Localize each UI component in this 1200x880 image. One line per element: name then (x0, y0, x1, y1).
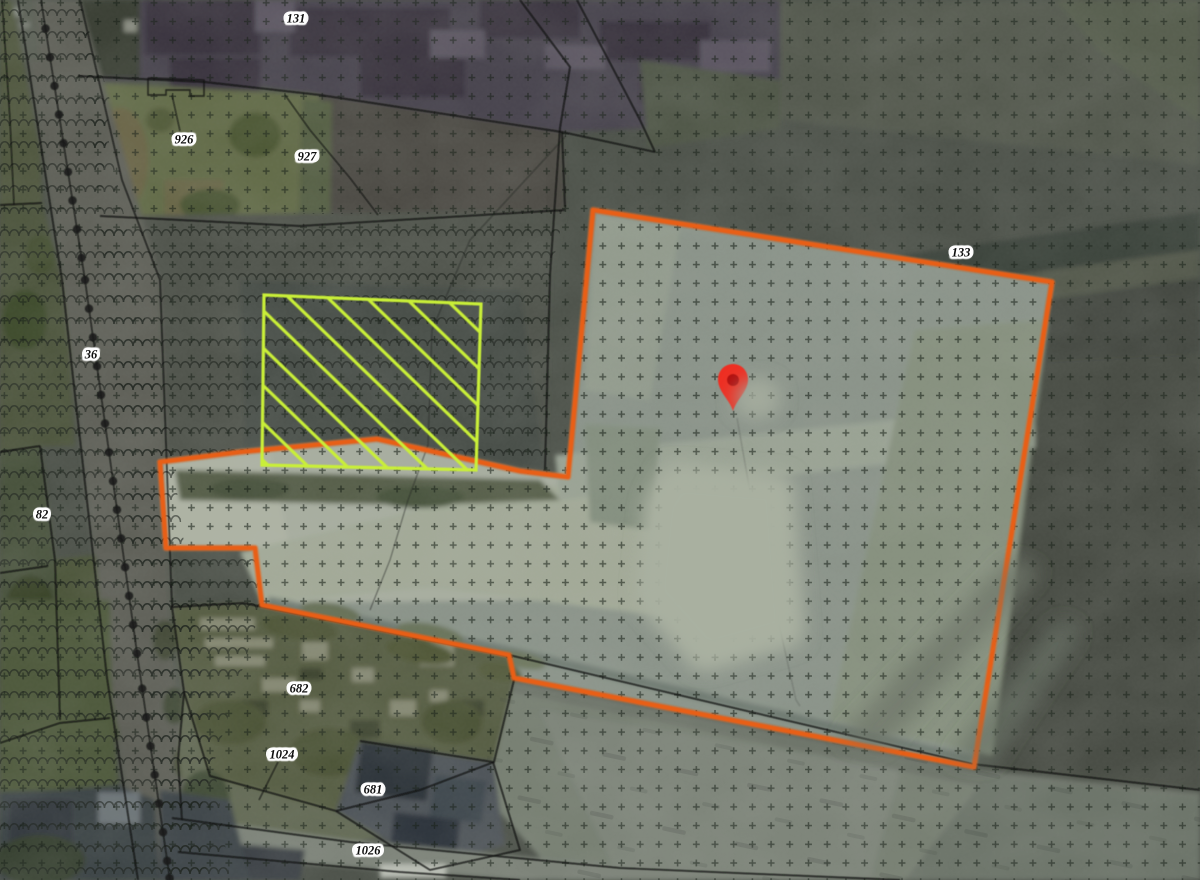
svg-text:133: 133 (952, 246, 971, 260)
svg-text:927: 927 (298, 150, 318, 164)
svg-text:926: 926 (175, 133, 195, 147)
svg-text:1024: 1024 (270, 748, 295, 762)
svg-text:36: 36 (84, 348, 98, 362)
svg-text:82: 82 (36, 508, 49, 522)
svg-text:131: 131 (287, 12, 306, 26)
svg-text:681: 681 (364, 783, 383, 797)
svg-text:1026: 1026 (356, 844, 382, 858)
svg-text:682: 682 (290, 682, 309, 696)
